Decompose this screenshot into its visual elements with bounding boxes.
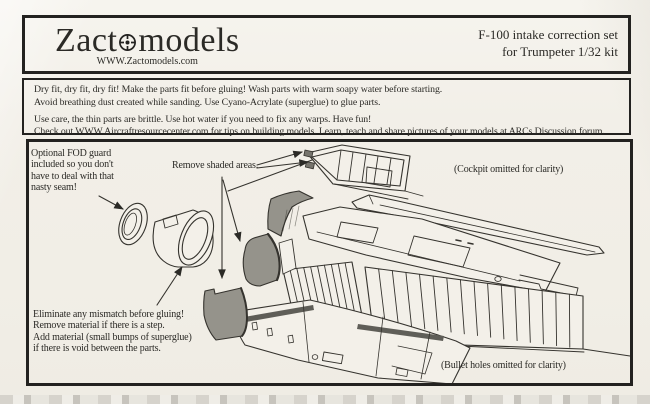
fod-guard-note-line4: nasty seam! [31, 182, 114, 193]
brand-logo: Zactmodels WWW.Zactomodels.com [55, 22, 240, 67]
product-title: F-100 intake correction set for Trumpete… [478, 26, 618, 60]
brand-name-post: models [138, 22, 239, 59]
mismatch-note-line1: Eliminate any mismatch before gluing! [33, 309, 192, 320]
fod-guard-note-line1: Optional FOD guard [31, 148, 114, 159]
instruction-line-2: Avoid breathing dust created while sandi… [34, 97, 629, 110]
mismatch-note-line2: Remove material if there is a step. [33, 320, 192, 331]
brand-name-pre: Zact [55, 22, 117, 59]
brand-name: Zactmodels [55, 22, 240, 59]
crosshair-reticle-icon [117, 32, 138, 53]
instruction-line-4: Check out WWW.Aircraftresourcecenter.com… [34, 126, 629, 139]
mismatch-note: Eliminate any mismatch before gluing! Re… [33, 309, 192, 355]
product-title-line2: for Trumpeter 1/32 kit [478, 43, 618, 60]
cockpit-omitted-note: (Cockpit omitted for clarity) [454, 164, 563, 175]
instructions-box: Dry fit, dry fit, dry fit! Make the part… [22, 78, 631, 135]
header-box: Zactmodels WWW.Zactomodels.com F-100 int… [22, 15, 631, 74]
mismatch-note-line3: Add material (small bumps of superglue) [33, 332, 192, 343]
remove-shaded-label: Remove shaded areas. [172, 160, 258, 171]
fod-guard-note-line2: included so you don't [31, 159, 114, 170]
instruction-line-1: Dry fit, dry fit, dry fit! Make the part… [34, 84, 629, 97]
scanned-instruction-sheet: Zactmodels WWW.Zactomodels.com F-100 int… [0, 0, 650, 404]
fod-guard-note: Optional FOD guard included so you don't… [31, 148, 114, 194]
instruction-line-3: Use care, the thin parts are brittle. Us… [34, 114, 629, 127]
fod-guard-note-line3: have to deal with that [31, 171, 114, 182]
bullet-holes-omitted-note: (Bullet holes omitted for clarity) [441, 360, 566, 371]
product-title-line1: F-100 intake correction set [478, 26, 618, 43]
scanner-edge-artifact [0, 395, 650, 404]
mismatch-note-line4: if there is void between the parts. [33, 343, 192, 354]
